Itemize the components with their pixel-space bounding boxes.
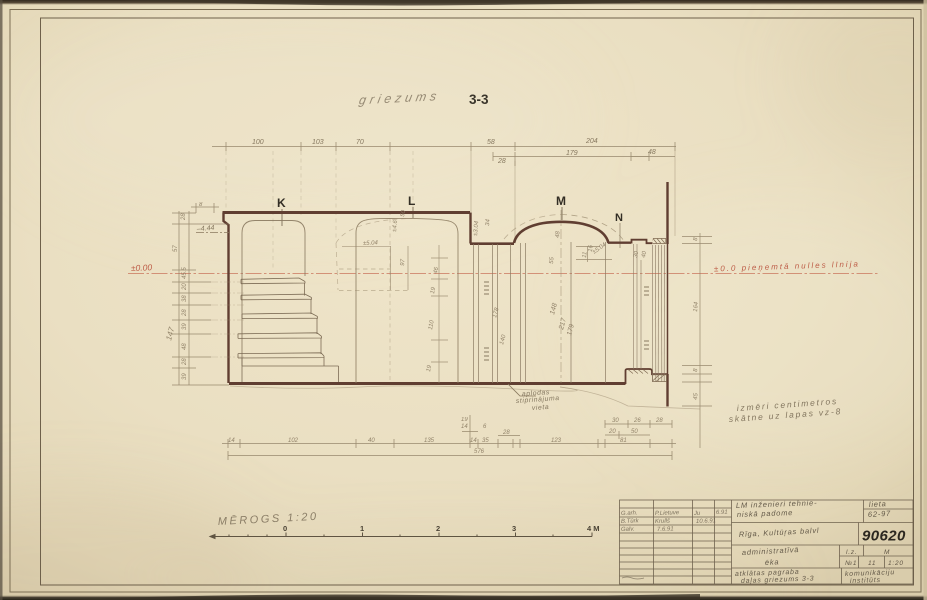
svg-text:±5.04: ±5.04 bbox=[363, 240, 379, 247]
svg-text:Galv.: Galv. bbox=[621, 527, 635, 533]
svg-text:28: 28 bbox=[502, 430, 510, 436]
svg-text:l.z.: l.z. bbox=[846, 549, 858, 556]
svg-text:G.arh.: G.arh. bbox=[621, 510, 638, 517]
svg-text:P.Lietuve: P.Lietuve bbox=[655, 510, 680, 517]
svg-text:38: 38 bbox=[182, 295, 188, 302]
svg-text:0: 0 bbox=[283, 524, 287, 533]
svg-text:55: 55 bbox=[549, 256, 556, 264]
svg-text:K: K bbox=[277, 196, 286, 210]
svg-text:1: 1 bbox=[360, 524, 364, 533]
svg-text:48: 48 bbox=[555, 230, 562, 238]
svg-text:70: 70 bbox=[356, 139, 364, 146]
svg-text:Ju: Ju bbox=[693, 511, 701, 517]
svg-text:7.6.91: 7.6.91 bbox=[657, 526, 674, 533]
svg-text:40: 40 bbox=[368, 438, 375, 444]
svg-text:14: 14 bbox=[228, 438, 235, 444]
svg-text:81: 81 bbox=[620, 438, 627, 444]
svg-text:11: 11 bbox=[868, 560, 876, 567]
svg-text:20: 20 bbox=[182, 283, 188, 291]
svg-text:100: 100 bbox=[252, 139, 264, 146]
svg-text:48: 48 bbox=[182, 343, 188, 350]
svg-text:103: 103 bbox=[312, 139, 324, 146]
svg-text:±0.00: ±0.00 bbox=[131, 262, 153, 273]
svg-text:50: 50 bbox=[631, 429, 638, 435]
svg-text:N: N bbox=[615, 212, 623, 224]
svg-text:45.5: 45.5 bbox=[182, 267, 188, 279]
svg-text:B.Tūrk: B.Tūrk bbox=[621, 518, 640, 525]
svg-text:57: 57 bbox=[173, 245, 179, 252]
svg-text:№1: №1 bbox=[845, 560, 857, 567]
svg-text:35: 35 bbox=[482, 438, 489, 444]
svg-text:58: 58 bbox=[487, 139, 495, 146]
svg-text:3: 3 bbox=[512, 524, 516, 533]
svg-text:4 M: 4 M bbox=[587, 524, 600, 533]
svg-text:19: 19 bbox=[461, 417, 468, 423]
svg-text:62-97: 62-97 bbox=[868, 509, 892, 519]
svg-text:135: 135 bbox=[424, 438, 435, 444]
svg-text:–4.44: –4.44 bbox=[196, 225, 215, 233]
svg-text:28: 28 bbox=[182, 309, 188, 317]
svg-text:204: 204 bbox=[585, 138, 598, 145]
svg-text:30: 30 bbox=[612, 418, 619, 424]
svg-text:6.91: 6.91 bbox=[716, 510, 728, 516]
svg-text:576: 576 bbox=[474, 449, 485, 455]
svg-text:institūts: institūts bbox=[850, 577, 881, 585]
svg-text:102: 102 bbox=[288, 438, 299, 444]
svg-text:45: 45 bbox=[693, 392, 700, 400]
svg-text:Krullš: Krullš bbox=[655, 518, 670, 525]
svg-text:28: 28 bbox=[181, 213, 187, 221]
svg-text:164: 164 bbox=[693, 301, 700, 312]
svg-text:28: 28 bbox=[497, 158, 506, 165]
svg-text:ēka: ēka bbox=[765, 557, 780, 567]
svg-text:1:20: 1:20 bbox=[888, 560, 904, 567]
svg-text:10.6.91: 10.6.91 bbox=[696, 518, 716, 525]
svg-text:26: 26 bbox=[633, 418, 641, 424]
svg-text:14: 14 bbox=[470, 438, 477, 444]
svg-text:39: 39 bbox=[182, 323, 188, 330]
svg-text:39: 39 bbox=[182, 373, 188, 380]
svg-text:M: M bbox=[556, 194, 566, 208]
svg-text:34: 34 bbox=[485, 218, 492, 226]
svg-text:28: 28 bbox=[182, 358, 188, 366]
svg-text:14: 14 bbox=[461, 424, 468, 430]
svg-text:M: M bbox=[884, 549, 890, 556]
svg-text:3-3: 3-3 bbox=[469, 92, 489, 107]
svg-text:±4.6: ±4.6 bbox=[392, 219, 399, 232]
svg-text:20: 20 bbox=[608, 429, 616, 435]
svg-text:28: 28 bbox=[655, 418, 663, 424]
svg-text:lieta: lieta bbox=[869, 499, 887, 509]
svg-text:97: 97 bbox=[400, 258, 407, 266]
svg-text:2: 2 bbox=[436, 524, 440, 533]
svg-text:vieta: vieta bbox=[532, 404, 550, 412]
svg-text:48: 48 bbox=[648, 149, 656, 156]
svg-text:179: 179 bbox=[566, 150, 578, 157]
svg-text:90620: 90620 bbox=[862, 528, 906, 545]
svg-text:L: L bbox=[408, 194, 415, 208]
svg-text:123: 123 bbox=[551, 438, 562, 444]
